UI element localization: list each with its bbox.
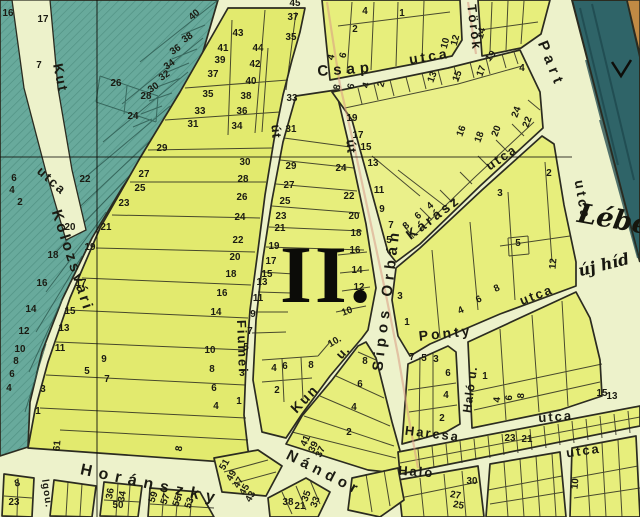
parcel-number: 22: [344, 191, 355, 202]
parcel-number: 11: [55, 343, 66, 354]
parcel-number: 5: [84, 366, 90, 377]
parcel-number: 28: [238, 174, 249, 185]
district-label: II.: [280, 229, 373, 320]
map-canvas: 1617726282440383634323022201816141210864…: [0, 0, 640, 517]
parcel-number: 23: [505, 433, 516, 444]
parcel-number: 41: [218, 43, 229, 54]
street-label: Haló: [398, 463, 435, 480]
parcel-number: 20: [349, 211, 360, 222]
parcel-number: 23: [276, 211, 287, 222]
parcel-number: 16: [217, 288, 228, 299]
parcel-number: 7: [36, 60, 42, 71]
street-label: út: [268, 124, 284, 140]
parcel-number: 15: [65, 306, 76, 317]
parcel-number: 7: [409, 352, 415, 363]
parcel-number: 2: [546, 168, 552, 179]
parcel-number: 4: [519, 63, 525, 74]
parcel-number: 61: [52, 439, 64, 451]
parcel-number: 8: [362, 356, 368, 367]
parcel-number: 17: [266, 256, 277, 267]
parcel-number: 26: [111, 78, 122, 89]
parcel-number: 35: [286, 32, 297, 43]
parcel-number: 3: [40, 384, 46, 395]
parcel-number: 1: [404, 317, 410, 328]
parcel-number: 19: [269, 241, 280, 252]
parcel-number: 10: [205, 345, 216, 356]
historical-map: 1617726282440383634323022201816141210864…: [0, 0, 640, 517]
parcel-number: 12: [19, 326, 30, 337]
parcel-number: 5: [421, 353, 427, 364]
parcel-number: 19: [85, 242, 96, 253]
parcel-number: 19: [347, 113, 358, 124]
parcel-number: 4: [362, 6, 368, 17]
parcel-number: 45: [290, 0, 301, 9]
parcel-number: 44: [253, 43, 264, 54]
parcel-number: 2: [17, 197, 23, 208]
parcel-number: 27: [284, 180, 295, 191]
parcel-number: 34: [232, 121, 243, 132]
parcel-number: 6: [445, 368, 451, 379]
parcel-number: 10: [15, 344, 26, 355]
parcel-number: 11: [253, 293, 264, 304]
parcel-number: 2: [439, 413, 445, 424]
parcel-number: 29: [157, 143, 168, 154]
parcel-number: 29: [286, 161, 297, 172]
parcel-number: 11: [374, 185, 385, 196]
parcel-number: 38: [283, 497, 294, 508]
parcel-number: 30: [467, 476, 478, 487]
parcel-number: 43: [233, 28, 244, 39]
parcel-number: 22: [80, 174, 91, 185]
street-label: út: [343, 139, 359, 155]
parcel-number: 9: [250, 309, 256, 320]
parcel-number: 10: [570, 477, 582, 489]
parcel-number: 13: [368, 158, 379, 169]
parcel-number: 4: [9, 185, 15, 196]
parcel-number: 14: [26, 304, 37, 315]
parcel-number: 2: [274, 385, 280, 396]
parcel-number: 22: [233, 235, 244, 246]
parcel-number: 4: [6, 383, 12, 394]
parcel-number: 16: [37, 278, 48, 289]
parcel-number: 8: [308, 360, 314, 371]
parcel-number: 18: [48, 250, 59, 261]
street-label: Fiumei: [234, 320, 251, 374]
parcel-number: 6: [357, 379, 363, 390]
parcel-number: 14: [211, 307, 222, 318]
parcel-number: 4: [351, 402, 357, 413]
parcel-number: 9: [379, 204, 385, 215]
parcel-number: 3: [433, 354, 439, 365]
parcel-number: 6: [9, 369, 15, 380]
parcel-number: 24: [336, 163, 347, 174]
parcel-number: 27: [139, 169, 150, 180]
parcel-number: 33: [287, 93, 298, 104]
parcel-number: 38: [241, 91, 252, 102]
parcel-number: 2: [346, 427, 352, 438]
parcel-number: 16: [3, 8, 14, 19]
parcel-number: 9: [101, 354, 107, 365]
parcel-number: 36: [237, 106, 248, 117]
parcel-number: 6: [11, 173, 17, 184]
parcel-number: 4: [271, 363, 277, 374]
parcel-number: 6: [211, 383, 217, 394]
parcel-number: 6: [282, 361, 288, 372]
street-label: utca: [538, 408, 574, 425]
parcel-number: 21: [101, 222, 112, 233]
parcel-number: 5: [515, 238, 521, 249]
parcel-number: 4: [443, 390, 449, 401]
parcel-number: 20: [230, 252, 241, 263]
parcel-number: 40: [246, 76, 257, 87]
parcel-number: 13: [59, 323, 70, 334]
parcel-number: 1: [35, 406, 41, 417]
parcel-number: 21: [522, 434, 533, 445]
parcel-number: 3: [397, 291, 403, 302]
parcel-number: 35: [203, 89, 214, 100]
parcel-number: 15: [361, 142, 372, 153]
parcel-number: 25: [280, 196, 291, 207]
parcel-number: 50: [113, 500, 124, 511]
parcel-number: 8: [13, 356, 19, 367]
parcel-number: 3: [497, 188, 503, 199]
parcel-number: 37: [208, 69, 219, 80]
parcel-number: 33: [195, 106, 206, 117]
parcel-number: 21: [295, 501, 306, 512]
parcel-number: 7: [104, 374, 110, 385]
parcel-number: 26: [237, 192, 248, 203]
parcel-number: 12: [548, 257, 560, 269]
parcel-number: 13: [257, 277, 268, 288]
parcel-number: 1: [399, 8, 405, 19]
parcel-number: 31: [286, 124, 297, 135]
parcel-number: 39: [215, 55, 226, 66]
parcel-number: 23: [9, 497, 20, 508]
parcel-number: 1: [482, 371, 488, 382]
parcel-number: 42: [250, 59, 261, 70]
parcel-number: 4: [213, 401, 219, 412]
city-block: [50, 480, 96, 517]
parcel-number: 24: [235, 212, 246, 223]
parcel-number: 18: [226, 269, 237, 280]
parcel-number: 31: [188, 119, 199, 130]
parcel-number: 25: [135, 183, 146, 194]
parcel-number: 1: [236, 396, 242, 407]
parcel-number: 37: [288, 12, 299, 23]
parcel-number: 2: [352, 24, 358, 35]
parcel-number: 24: [128, 111, 139, 122]
parcel-number: 13: [607, 391, 618, 402]
parcel-number: 17: [38, 14, 49, 25]
parcel-number: 8: [209, 364, 215, 375]
parcel-number: 30: [240, 157, 251, 168]
parcel-number: 23: [119, 198, 130, 209]
